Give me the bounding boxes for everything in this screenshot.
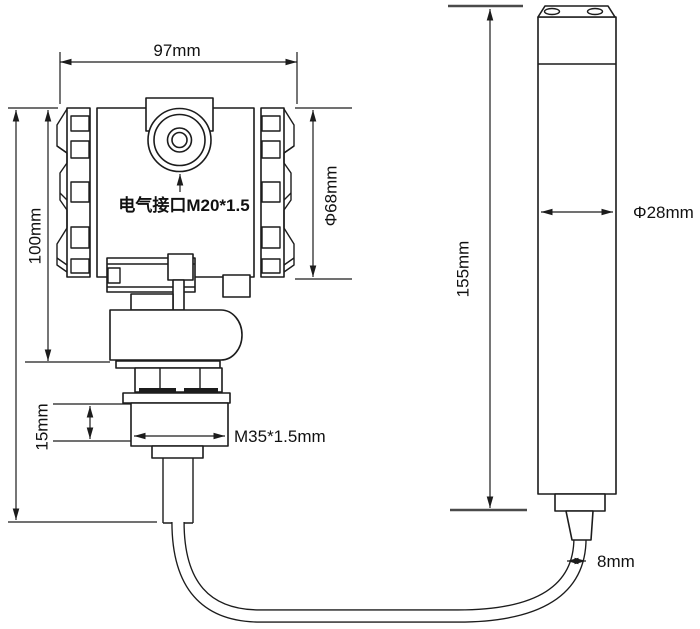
probe-bottom-step xyxy=(555,494,605,511)
thread-block xyxy=(131,403,228,446)
label-thread-height: 15mm xyxy=(33,403,52,450)
label-housing-diameter: Φ68mm xyxy=(322,166,341,227)
dimension-probe-length: 155mm xyxy=(448,6,527,510)
neck-body xyxy=(110,310,242,360)
label-probe-length: 155mm xyxy=(454,241,473,298)
housing-left-cap xyxy=(57,108,90,277)
housing-right-cap xyxy=(261,108,294,277)
level-transmitter-dimension-drawing: 97mm 100mm Φ68mm 电气接口M20*1.5 15mm M35*1.… xyxy=(0,0,700,629)
technical-drawing-canvas: 97mm 100mm Φ68mm 电气接口M20*1.5 15mm M35*1.… xyxy=(0,0,700,629)
probe-body xyxy=(538,17,616,494)
transmitter-housing-drawing xyxy=(57,98,294,523)
probe-cable-nipple xyxy=(566,511,593,540)
cable-gland-pipe xyxy=(163,458,193,523)
label-cable-diameter: 8mm xyxy=(597,552,635,571)
label-process-thread: M35*1.5mm xyxy=(234,427,326,446)
dimension-housing-diameter: Φ68mm xyxy=(295,108,352,279)
cable xyxy=(178,522,580,616)
label-electrical-port: 电气接口M20*1.5 xyxy=(118,195,249,215)
label-probe-diameter: Φ28mm xyxy=(633,203,694,222)
process-connection xyxy=(107,254,250,523)
probe-top-face xyxy=(538,6,615,17)
dimension-housing-height: 100mm xyxy=(8,108,110,362)
probe-drawing xyxy=(538,6,616,540)
label-housing-height: 100mm xyxy=(26,208,45,265)
dimension-overall-width: 97mm xyxy=(60,41,297,104)
dimension-thread-height: 15mm xyxy=(33,403,132,450)
flange xyxy=(123,393,230,403)
label-overall-width: 97mm xyxy=(153,41,200,60)
electrical-connector xyxy=(146,98,213,172)
